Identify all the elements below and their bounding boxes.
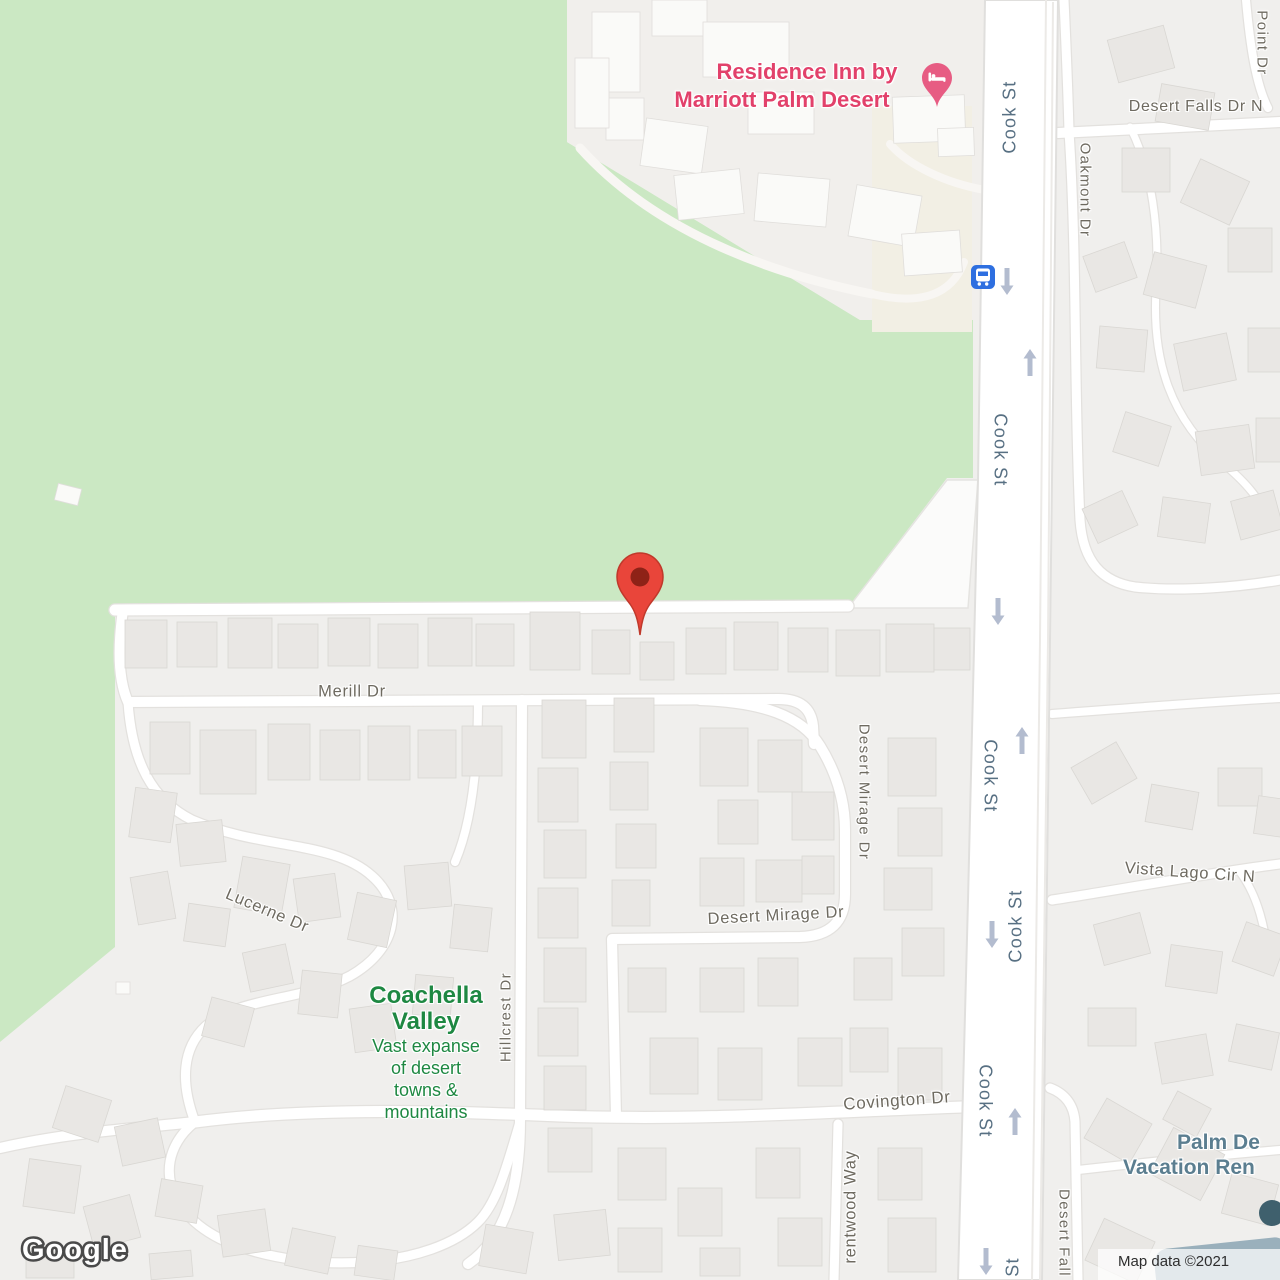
one-way-arrow-up-icon <box>1015 727 1030 755</box>
coachella-desc-line3: towns & <box>369 1079 482 1101</box>
coachella-desc-line1: Vast expanse <box>369 1035 482 1057</box>
one-way-arrow-down-icon <box>1000 267 1015 295</box>
street-label-desert-falls-dr-n: Desert Falls Dr N <box>1129 98 1264 116</box>
google-logo[interactable]: Google <box>16 1228 156 1270</box>
map-canvas[interactable]: Cook St Cook St Cook St Cook St Cook St … <box>0 0 1280 1280</box>
poi-label-coachella-valley[interactable]: Coachella Valley Vast expanse of desert … <box>369 983 482 1123</box>
street-label-hillcrest-dr: Hillcrest Dr <box>498 972 515 1062</box>
street-label-cook-st-2: Cook St <box>990 413 1011 486</box>
poi-label-vacation-rentals-line1[interactable]: Palm De <box>1177 1131 1260 1155</box>
street-label-oakmont-dr: Oakmont Dr <box>1077 143 1094 238</box>
red-destination-pin-icon[interactable] <box>616 552 664 637</box>
street-label-cook-st-partial: St <box>1003 1257 1024 1277</box>
street-label-cook-st-4: Cook St <box>1006 889 1027 962</box>
street-label-merill-dr: Merill Dr <box>318 683 386 702</box>
poi-label-residence-inn-line2[interactable]: Marriott Palm Desert <box>674 87 889 113</box>
bus-stop-icon[interactable] <box>971 265 995 289</box>
street-label-cook-st-1: Cook St <box>1000 80 1021 153</box>
coachella-title-line2: Valley <box>369 1009 482 1035</box>
one-way-arrow-down-icon <box>979 1247 994 1275</box>
hotel-pin-icon[interactable] <box>919 62 955 108</box>
poi-label-residence-inn-line1[interactable]: Residence Inn by <box>717 59 898 85</box>
one-way-arrow-down-icon <box>991 597 1006 625</box>
poi-label-vacation-rentals-line2[interactable]: Vacation Ren <box>1123 1156 1255 1180</box>
one-way-arrow-up-icon <box>1008 1108 1023 1136</box>
street-label-cook-st-3: Cook St <box>980 739 1001 812</box>
google-logo-text: Google <box>22 1234 128 1266</box>
one-way-arrow-up-icon <box>1023 349 1038 377</box>
street-label-cook-st-5: Cook St <box>975 1064 996 1137</box>
street-label-desert-falls-partial: Desert Fall <box>1056 1189 1073 1277</box>
map-attribution: Map data ©2021 <box>1118 1253 1229 1270</box>
coachella-desc-line4: mountains <box>369 1101 482 1123</box>
street-label-desert-mirage-dr-vertical: Desert Mirage Dr <box>856 724 873 861</box>
street-label-brentwood-way: rentwood Way <box>842 1150 861 1263</box>
coachella-desc-line2: of desert <box>369 1057 482 1079</box>
street-label-point-dr: Point Dr <box>1254 10 1271 75</box>
coachella-title-line1: Coachella <box>369 983 482 1009</box>
one-way-arrow-down-icon <box>985 920 1000 948</box>
